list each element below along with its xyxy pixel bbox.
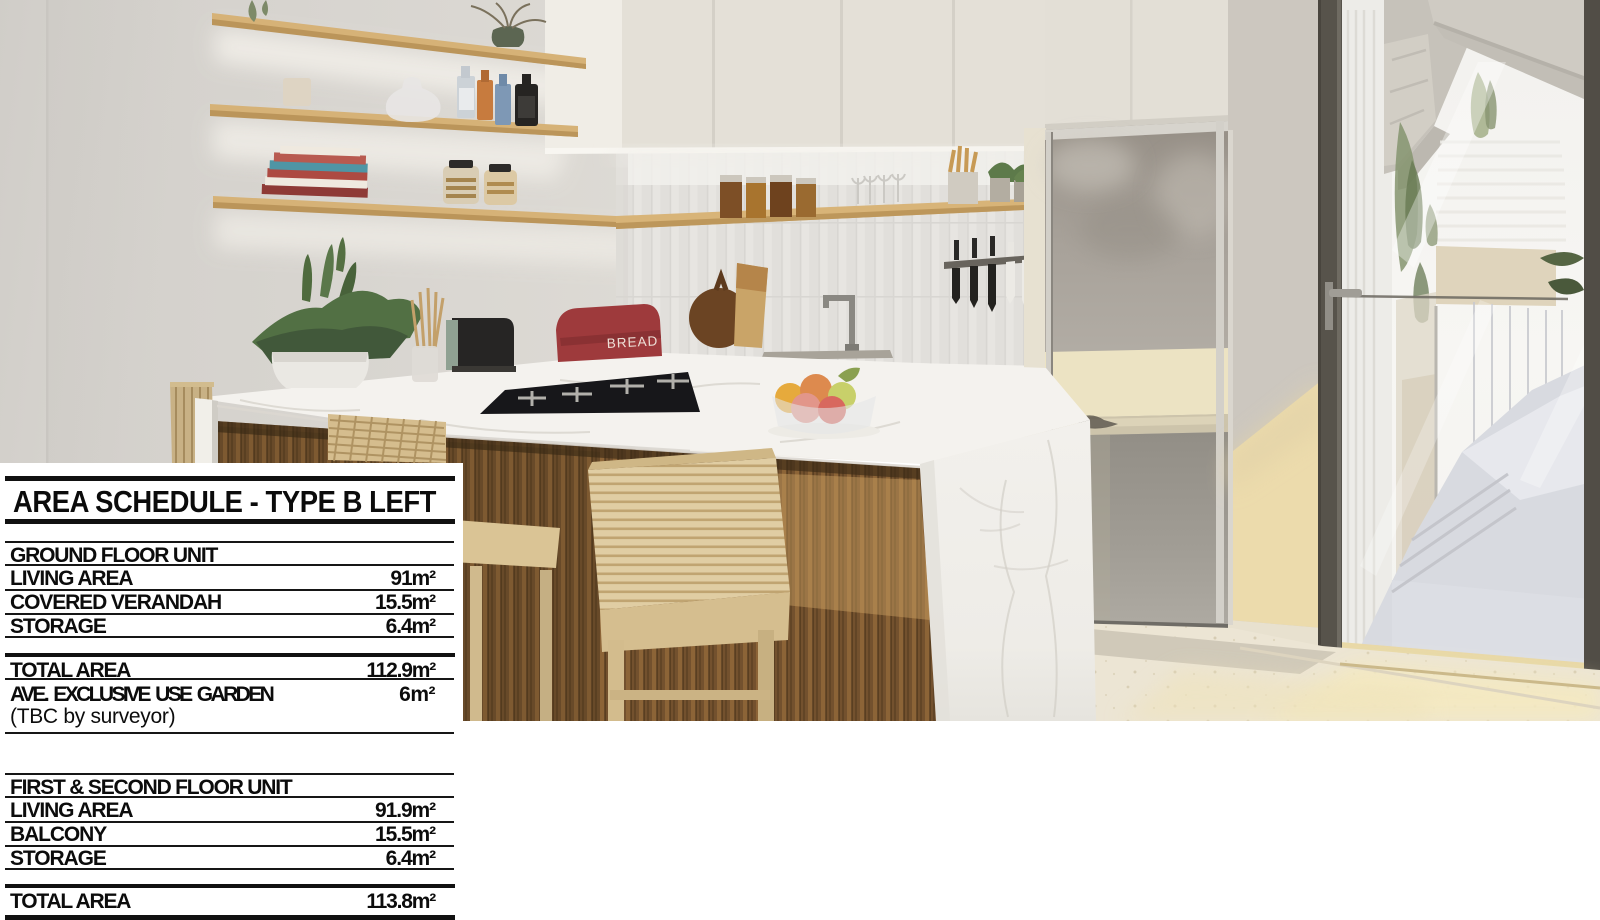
svg-text:BREAD: BREAD xyxy=(606,333,658,351)
